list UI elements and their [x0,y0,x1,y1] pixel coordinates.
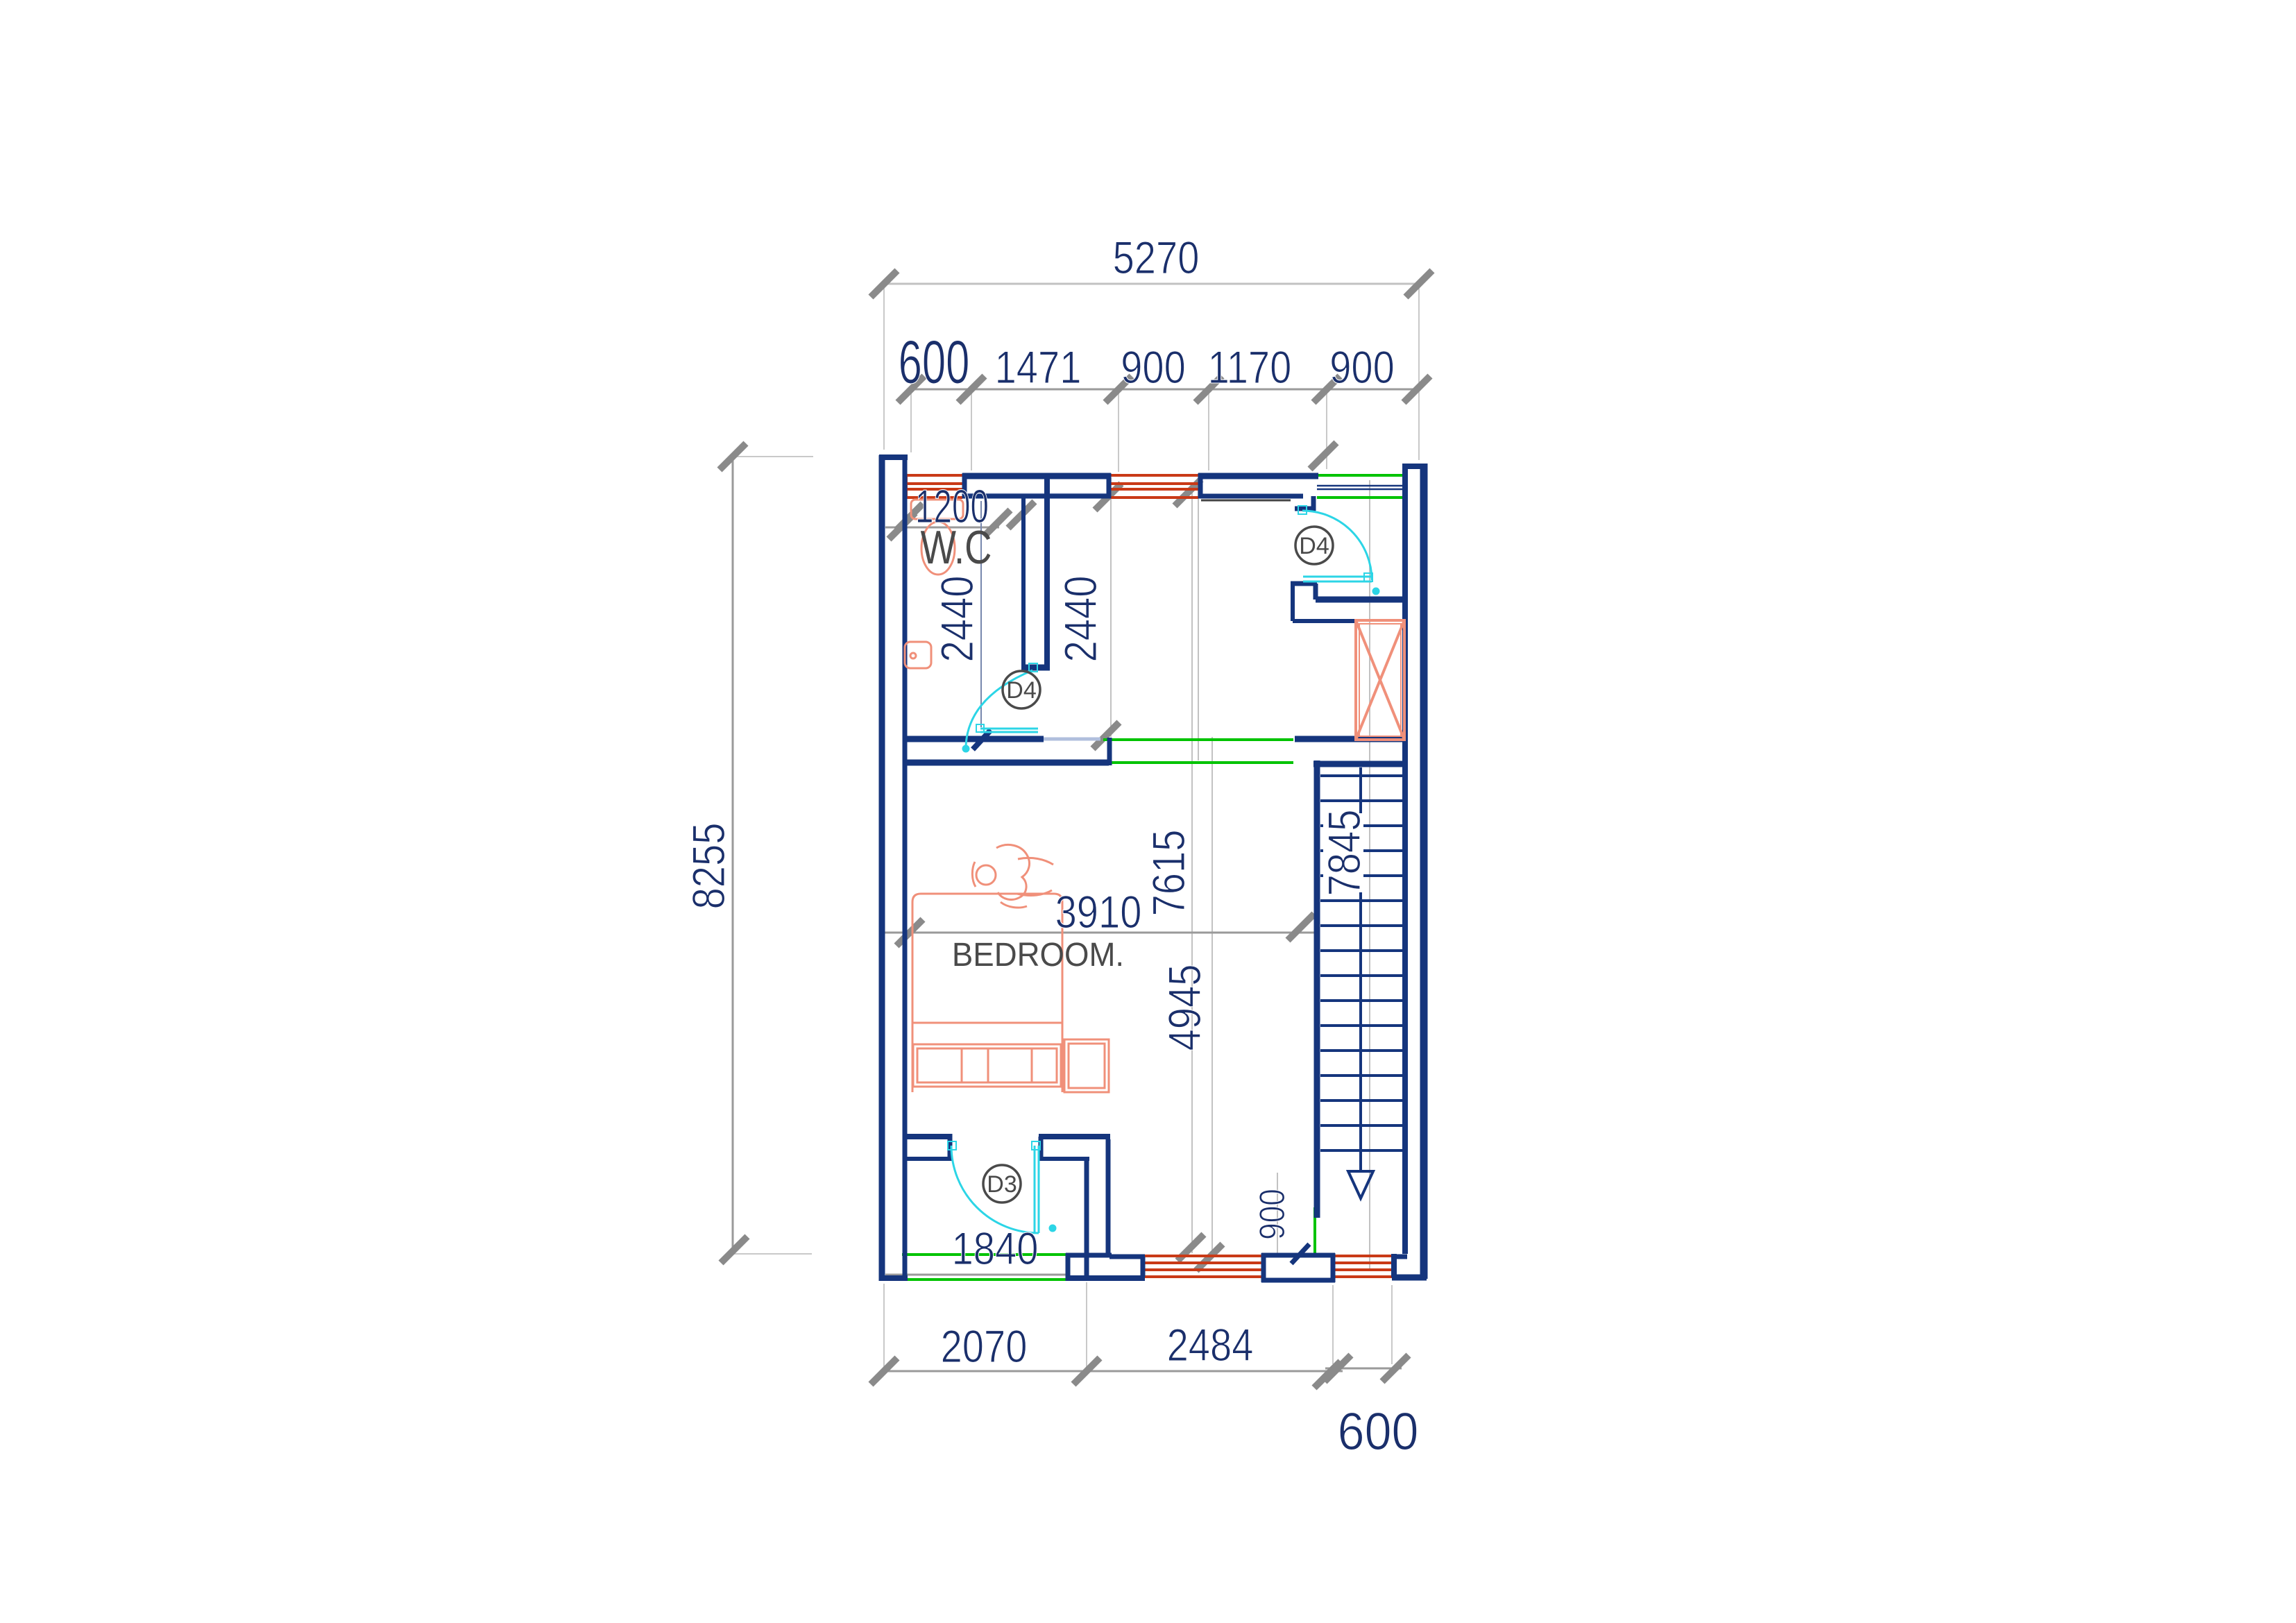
svg-text:600: 600 [899,328,970,396]
svg-text:7615: 7615 [1143,830,1194,917]
svg-text:1471: 1471 [995,342,1082,393]
svg-text:900: 900 [1329,342,1395,393]
svg-text:2440: 2440 [1055,576,1106,663]
svg-text:900: 900 [1121,342,1186,393]
svg-text:BEDROOM.: BEDROOM. [952,936,1124,973]
svg-text:2484: 2484 [1167,1320,1254,1370]
svg-text:D4: D4 [1006,677,1036,704]
svg-text:2070: 2070 [941,1321,1028,1372]
svg-text:2440: 2440 [932,576,983,663]
svg-text:1840: 1840 [952,1223,1039,1274]
svg-text:600: 600 [1338,1402,1419,1461]
svg-text:4945: 4945 [1159,965,1210,1051]
svg-text:7845: 7845 [1319,810,1370,897]
svg-text:D3: D3 [987,1171,1017,1198]
svg-text:900: 900 [1252,1189,1293,1240]
svg-text:D4: D4 [1299,533,1329,559]
svg-text:8255: 8255 [683,823,734,910]
svg-text:3910: 3910 [1055,887,1142,937]
svg-text:5270: 5270 [1113,232,1200,283]
svg-text:1170: 1170 [1208,342,1292,393]
svg-text:1200: 1200 [915,481,989,533]
